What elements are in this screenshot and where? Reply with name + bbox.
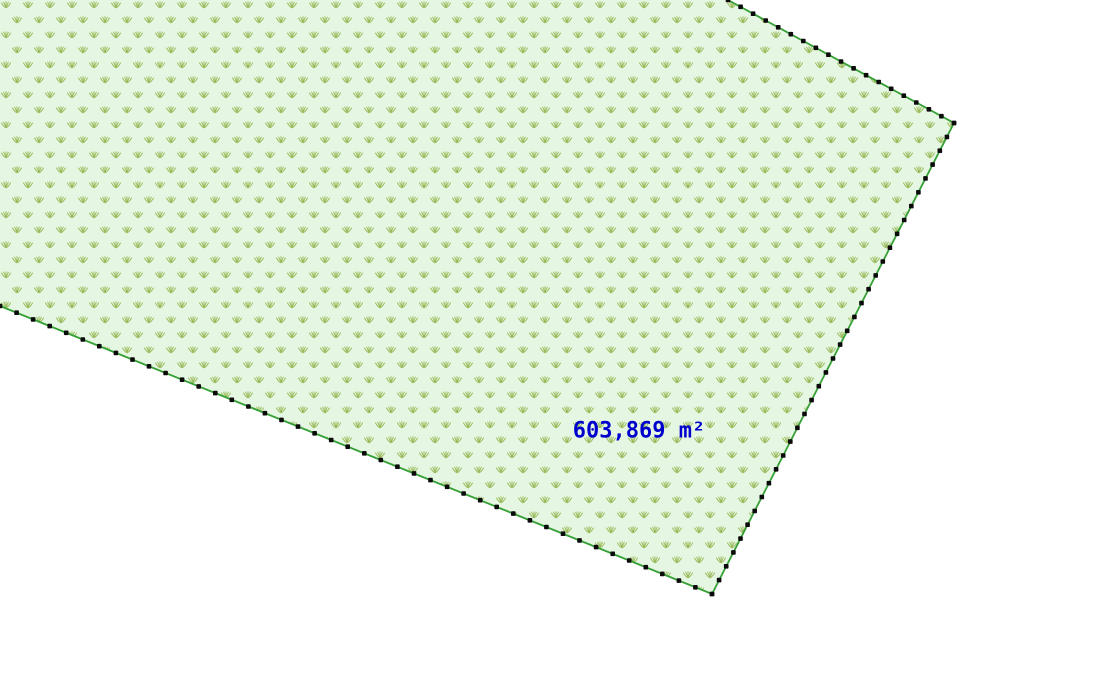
parcel-area-label: 603,869 m² bbox=[573, 419, 705, 444]
grass-glyphs bbox=[2, 2, 1100, 688]
grass-pattern-icon bbox=[0, 0, 1100, 688]
parcel-polygon[interactable] bbox=[0, 0, 1100, 688]
map-canvas[interactable]: 603,869 m² bbox=[0, 0, 1100, 688]
